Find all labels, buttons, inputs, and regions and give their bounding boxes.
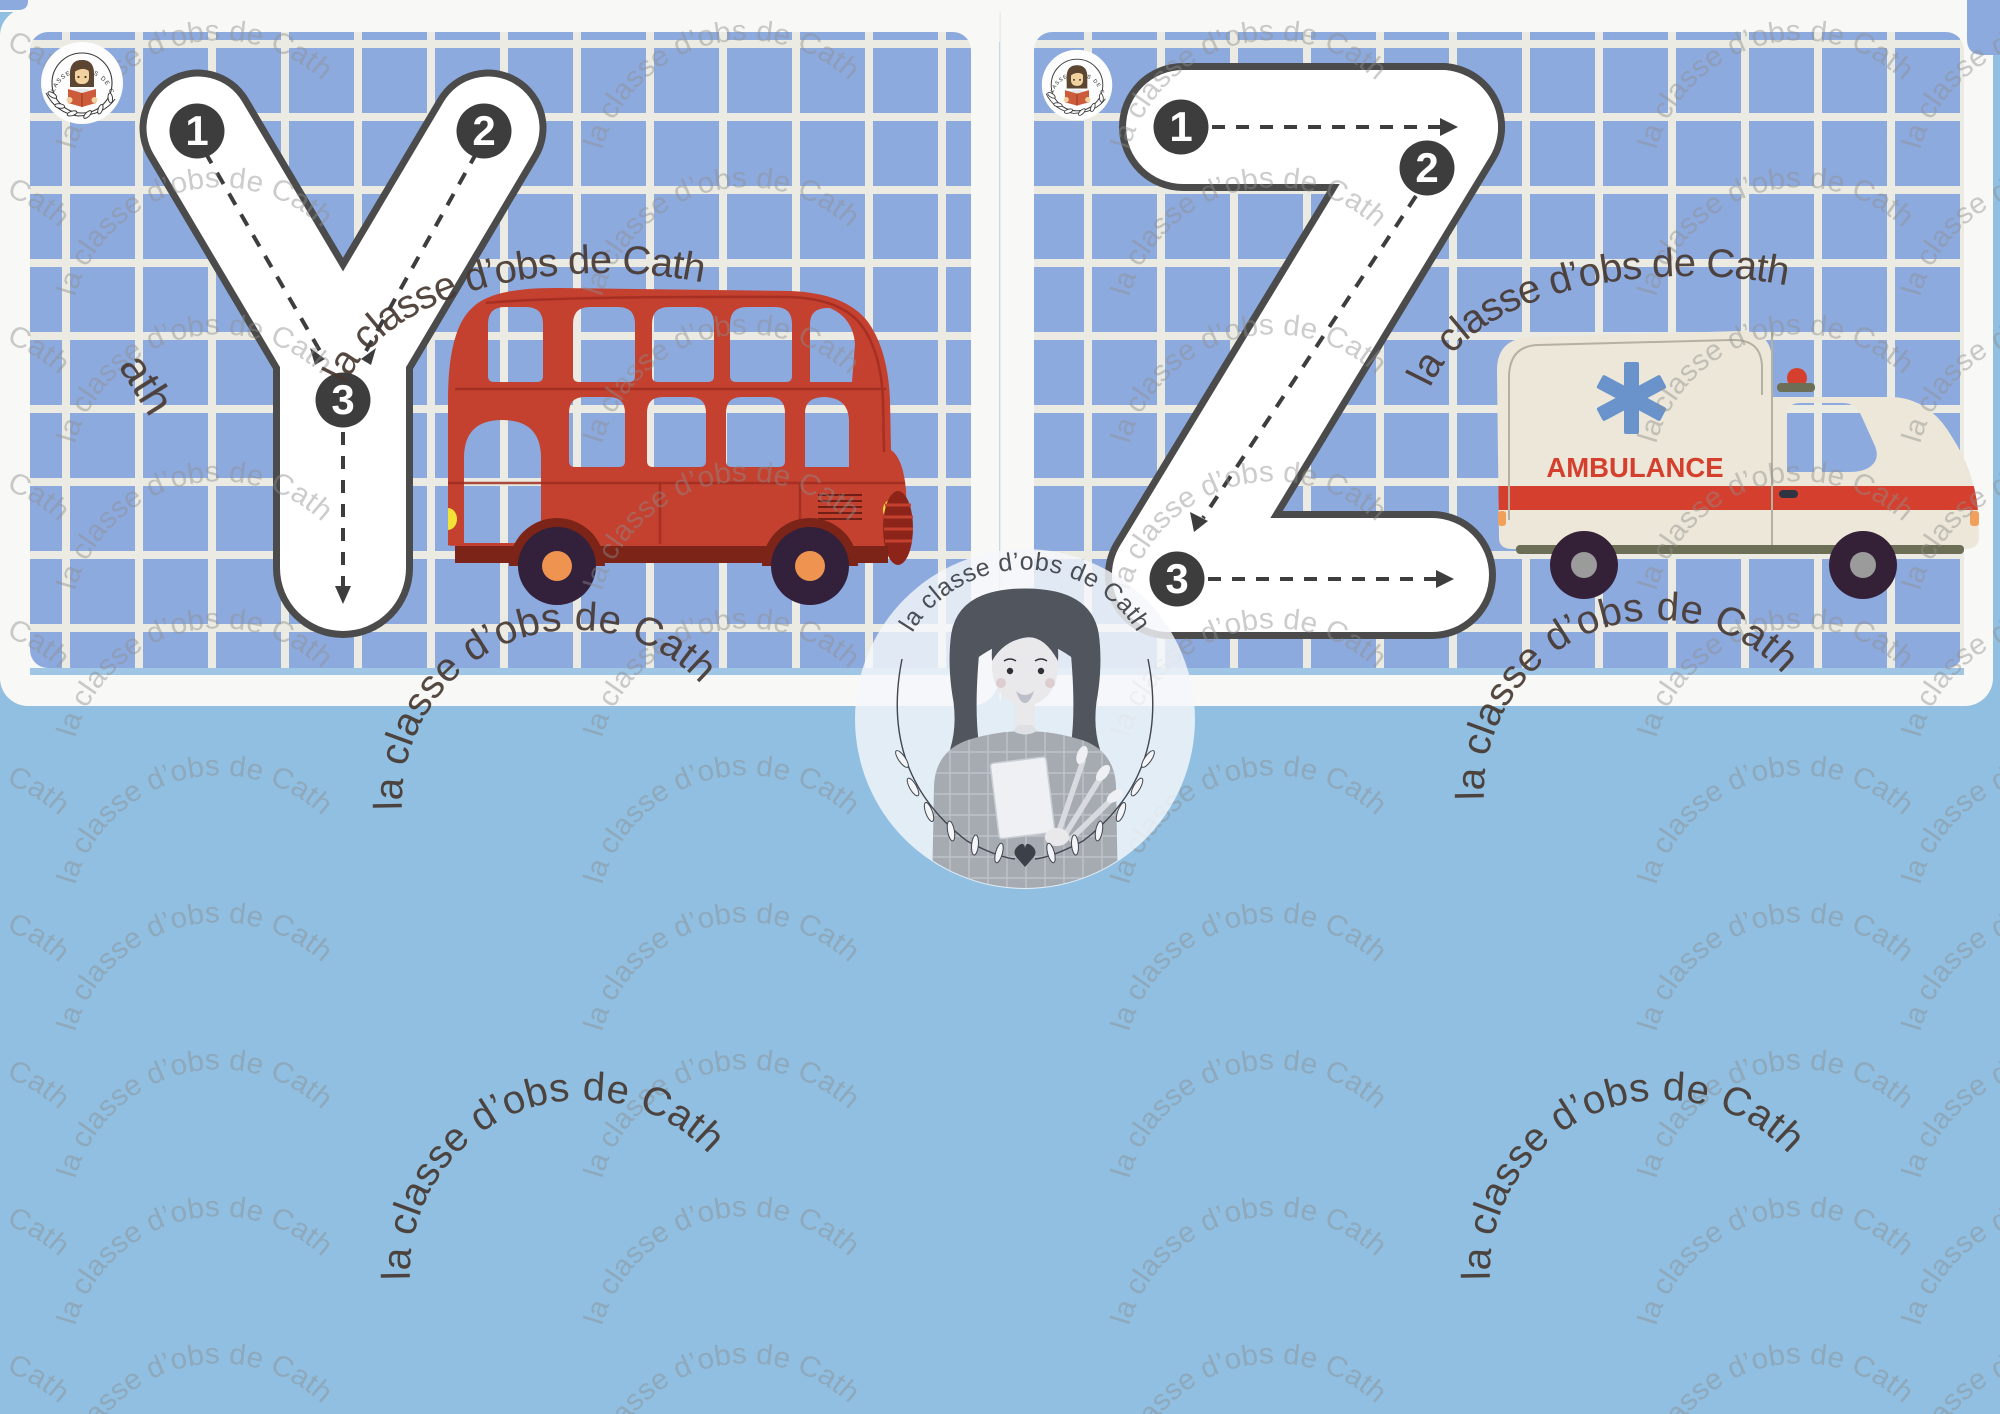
svg-text:AMBULANCE: AMBULANCE [1546, 452, 1723, 483]
svg-text:3: 3 [1165, 555, 1188, 602]
svg-text:1: 1 [1169, 103, 1192, 150]
svg-text:2: 2 [1415, 144, 1438, 191]
svg-text:2: 2 [472, 107, 495, 154]
svg-text:1: 1 [185, 107, 208, 154]
